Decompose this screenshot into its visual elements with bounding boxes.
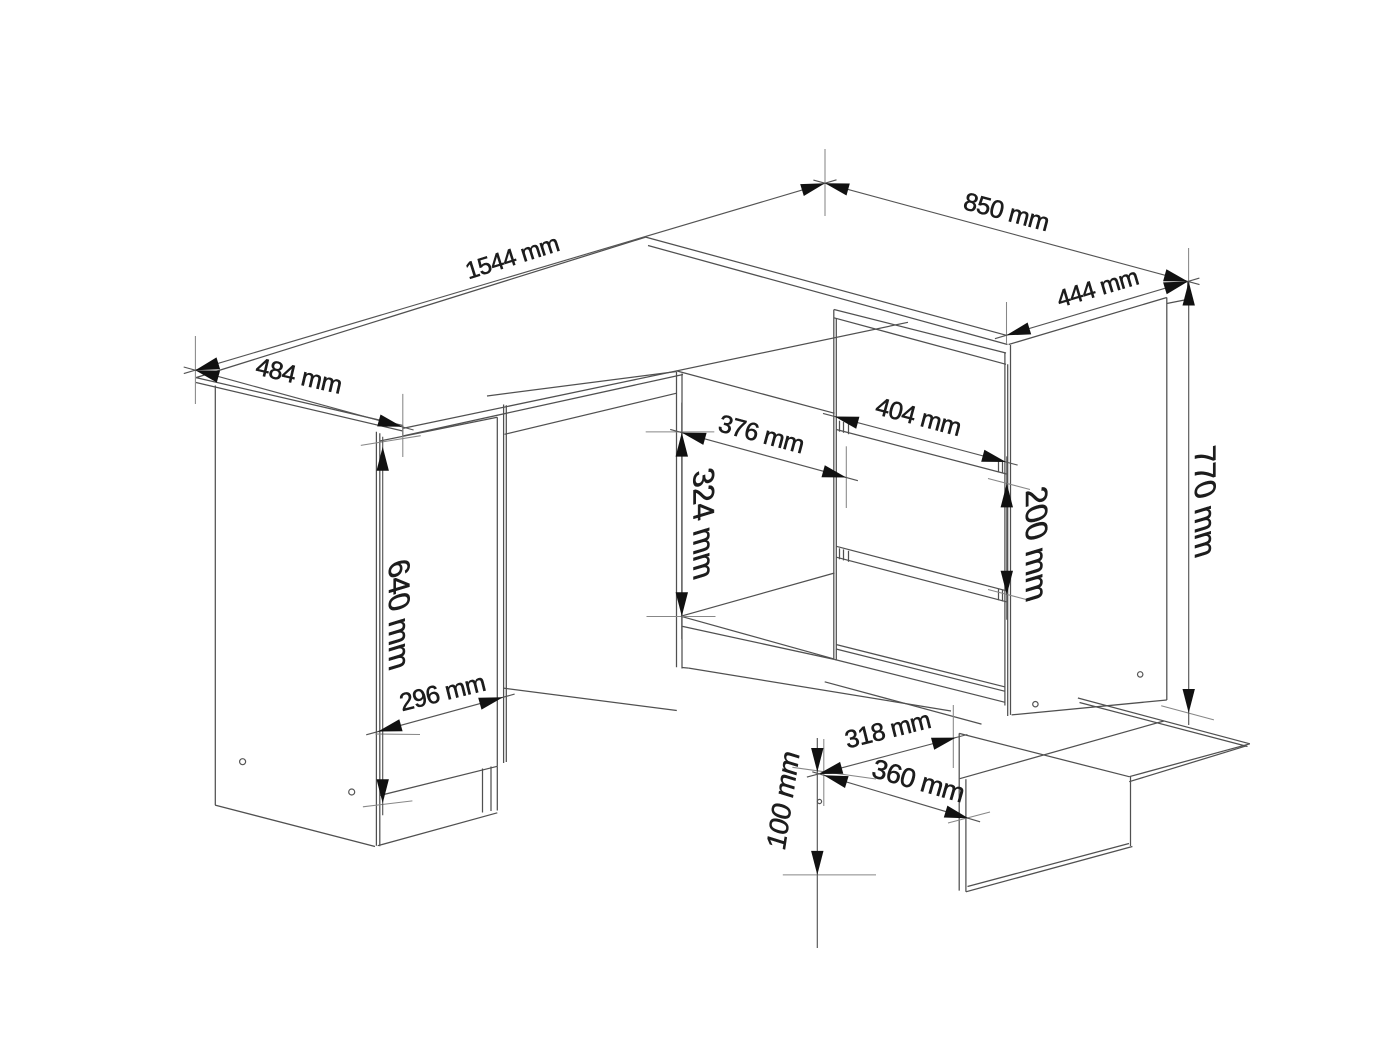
svg-text:770 mm: 770 mm bbox=[1188, 442, 1222, 561]
svg-text:324 mm: 324 mm bbox=[687, 464, 721, 583]
svg-text:640 mm: 640 mm bbox=[382, 555, 416, 674]
svg-text:200 mm: 200 mm bbox=[1019, 482, 1053, 605]
